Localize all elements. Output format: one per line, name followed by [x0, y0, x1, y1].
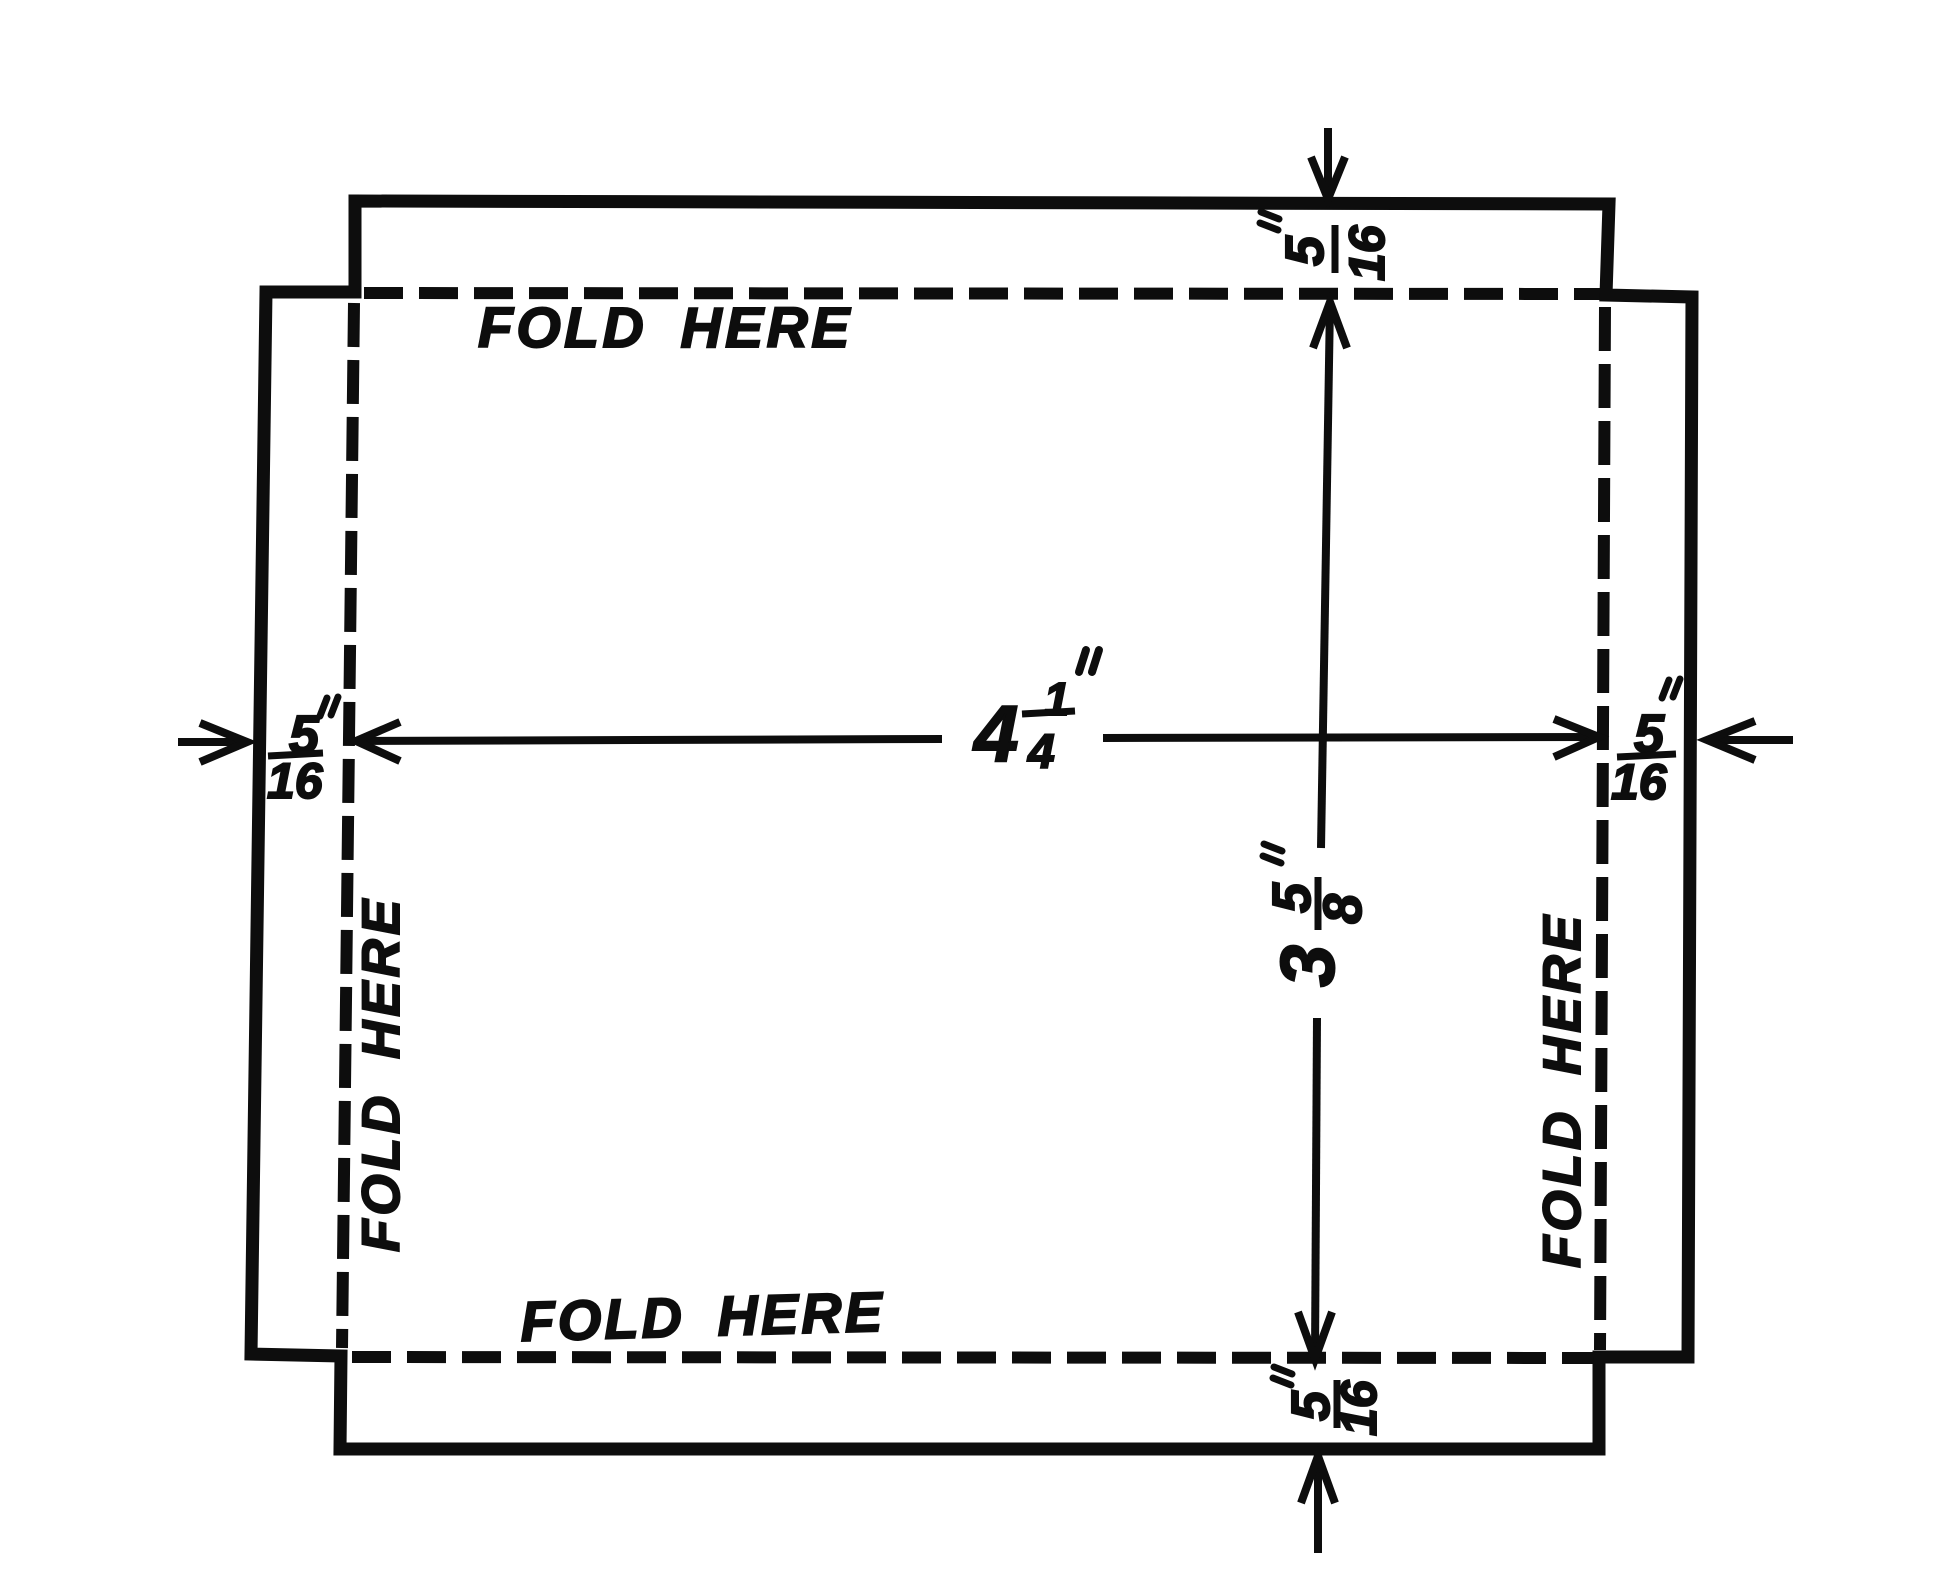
svg-text:3: 3: [1266, 945, 1351, 987]
svg-text:1: 1: [1044, 673, 1070, 725]
svg-text:16: 16: [1339, 224, 1395, 281]
svg-text:16: 16: [1611, 754, 1668, 810]
svg-text:5: 5: [1275, 235, 1335, 266]
svg-text:4: 4: [1027, 726, 1055, 779]
svg-text:FOLD HERE: FOLD HERE: [520, 1280, 886, 1353]
svg-text:FOLD HERE: FOLD HERE: [352, 896, 411, 1252]
svg-text:FOLD HERE: FOLD HERE: [1533, 912, 1592, 1268]
svg-text:16: 16: [267, 753, 324, 809]
svg-text:4: 4: [972, 689, 1019, 778]
svg-text:8: 8: [1313, 894, 1373, 924]
svg-text:FOLD HERE: FOLD HERE: [478, 296, 853, 360]
